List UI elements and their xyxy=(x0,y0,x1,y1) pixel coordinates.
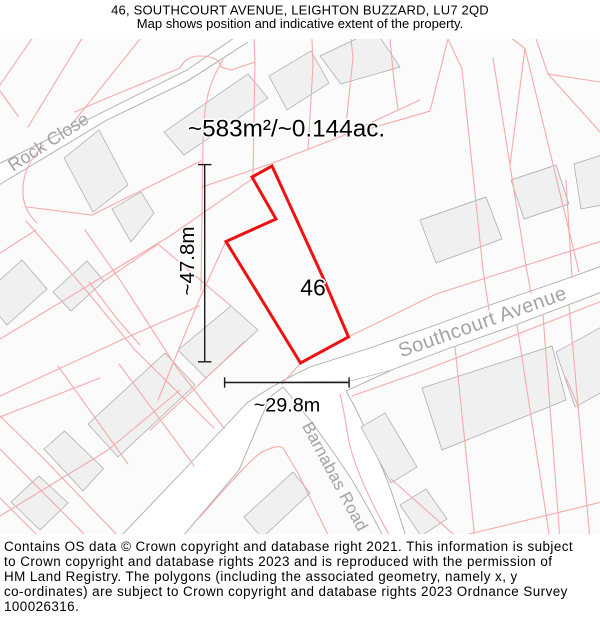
svg-text:~29.8m: ~29.8m xyxy=(254,395,321,417)
svg-text:HM Land Registry. The polygons: HM Land Registry. The polygons (includin… xyxy=(4,569,518,584)
svg-text:100026316.: 100026316. xyxy=(4,599,79,614)
svg-text:~583m²/~0.144ac.: ~583m²/~0.144ac. xyxy=(188,116,385,143)
svg-text:to Crown copyright and databas: to Crown copyright and database rights 2… xyxy=(4,554,552,569)
svg-text:Contains OS data © Crown copyr: Contains OS data © Crown copyright and d… xyxy=(4,539,573,554)
svg-text:Map shows position and indicat: Map shows position and indicative extent… xyxy=(137,16,463,31)
svg-text:~47.8m: ~47.8m xyxy=(176,227,199,296)
svg-text:co-ordinates) are subject to C: co-ordinates) are subject to Crown copyr… xyxy=(4,584,568,599)
svg-text:46: 46 xyxy=(300,275,326,301)
